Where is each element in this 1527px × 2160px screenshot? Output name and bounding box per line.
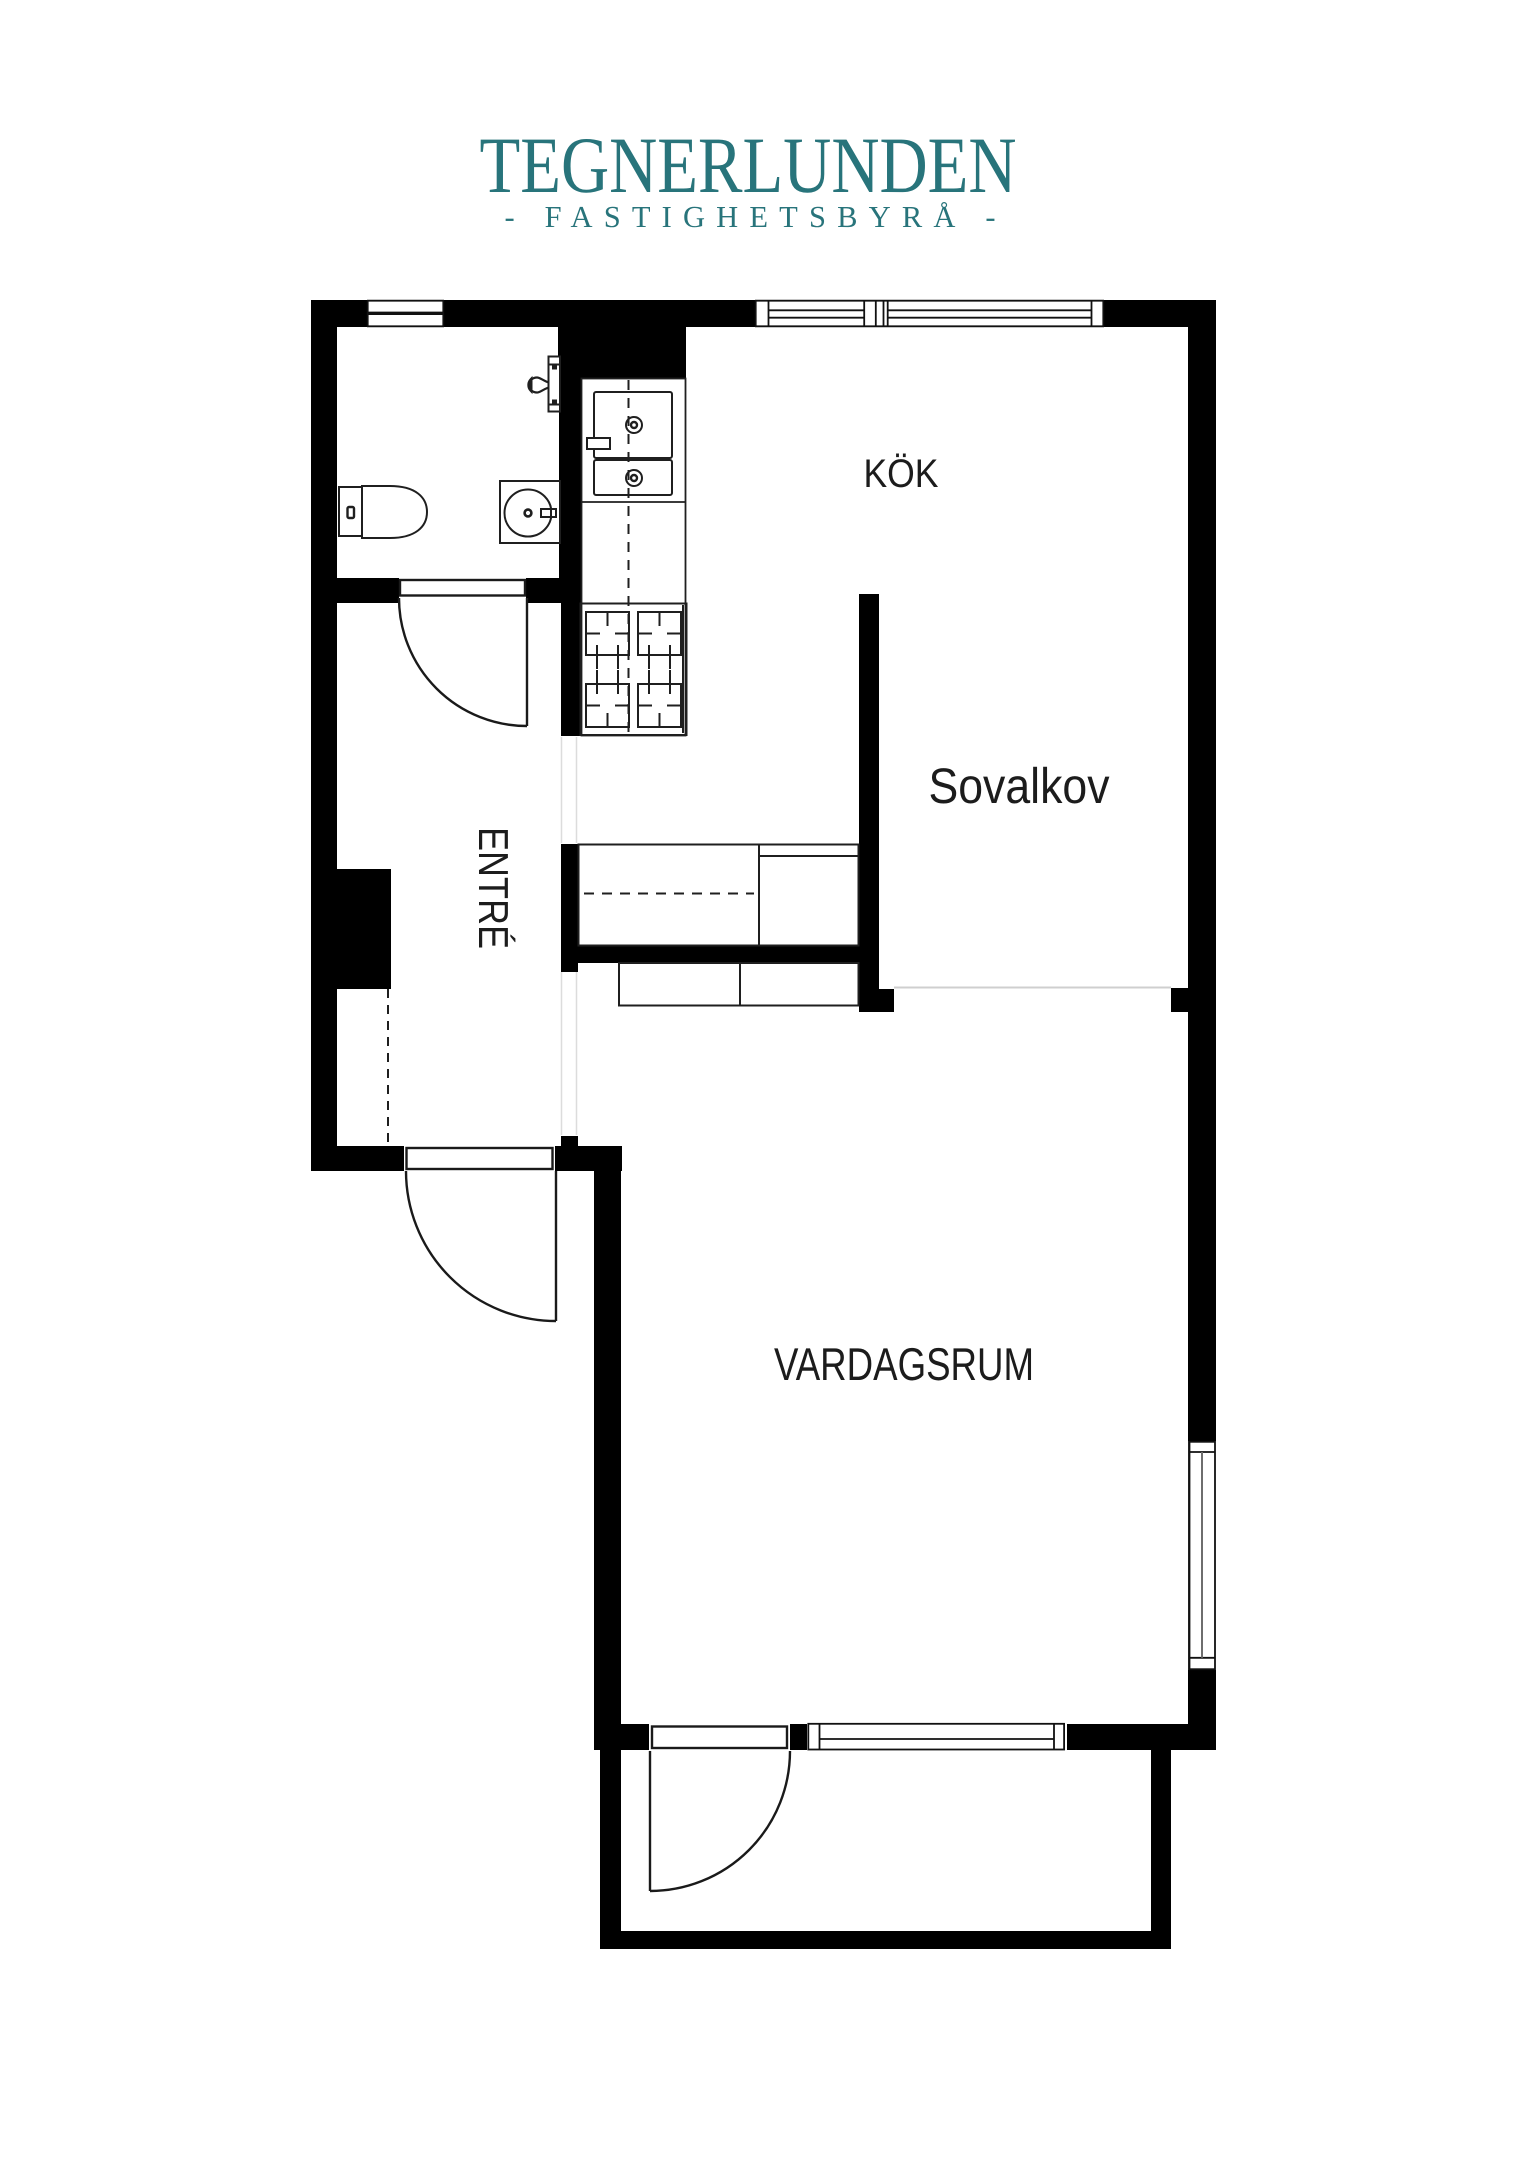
svg-text:- FASTIGHETSBYRÅ -: - FASTIGHETSBYRÅ - — [505, 200, 996, 234]
svg-text:Sovalkov: Sovalkov — [929, 758, 1110, 814]
svg-text:KÖK: KÖK — [864, 452, 939, 496]
svg-text:ENTRÉ: ENTRÉ — [470, 827, 517, 949]
svg-text:TEGNERLUNDEN: TEGNERLUNDEN — [480, 122, 1017, 210]
svg-text:VARDAGSRUM: VARDAGSRUM — [774, 1338, 1034, 1390]
